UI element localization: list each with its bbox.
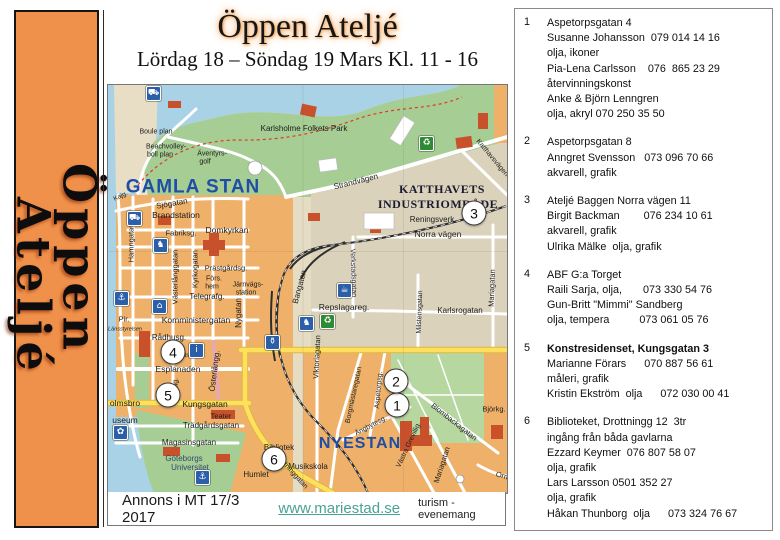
map-marker-4: 4 bbox=[161, 340, 186, 365]
listing-line: Aspetorpsgatan 4 bbox=[547, 16, 768, 31]
listing-line: Pia-Lena Carlsson 076 865 23 29 bbox=[547, 62, 768, 77]
listing-line: akvarell, grafik bbox=[547, 166, 768, 181]
listing-line: Kristin Ekström olja 072 030 00 41 bbox=[547, 387, 768, 402]
map-marker-1: 1 bbox=[385, 393, 410, 418]
map-label-aspetorpsg: Aspetorpsg. bbox=[374, 371, 384, 409]
camper-icon: ⛟ bbox=[146, 86, 161, 101]
map-overlay: GAMLA STANNYESTANKATTHAVETSINDUSTRIOMRÅD… bbox=[108, 85, 507, 493]
listing-entry: 2 Aspetorpsgatan 8 Anngret Svensson 073 … bbox=[524, 135, 768, 181]
divider-line bbox=[103, 10, 104, 527]
map-label-borgmastaregatan: Borgmästaregatan bbox=[345, 366, 364, 424]
map-label-bjorkg: Björkg. bbox=[482, 405, 505, 413]
listing-line: Raili Sarja, olja, 073 330 54 76 bbox=[547, 283, 768, 298]
info-icon: i bbox=[189, 343, 204, 358]
map-label-reningsverk: Reningsverk bbox=[410, 216, 454, 224]
museum-flower-icon: ✿ bbox=[113, 425, 128, 440]
map-label-golf: golf bbox=[199, 159, 210, 166]
map-label-kajg: Kajg. bbox=[113, 191, 129, 203]
map-label-pir: Pir. bbox=[119, 315, 130, 323]
map-marker-2: 2 bbox=[384, 369, 409, 394]
page-title: Öppen Ateljé bbox=[107, 8, 508, 45]
recycle-icon-2: ♻ bbox=[419, 136, 434, 151]
map-marker-6: 6 bbox=[262, 447, 287, 472]
map-label-mariagatan-n: Mariagatan bbox=[488, 269, 497, 307]
map-label-holmsbro: olmsbro bbox=[110, 399, 140, 408]
map-label-bollplan: boll plan bbox=[147, 152, 173, 159]
map-marker-5: 5 bbox=[156, 383, 181, 408]
anchor-icon: ⚓ bbox=[114, 291, 129, 306]
banner-text: Öppen Ateljé bbox=[11, 163, 103, 376]
listing-number: 2 bbox=[524, 135, 547, 181]
listing-line: olja, grafik bbox=[547, 491, 768, 506]
map-label-blombackagatan: Blombackagatan bbox=[430, 402, 479, 442]
listing-line: ingång från båda gavlarna bbox=[547, 431, 768, 446]
church-icon: ⌂ bbox=[152, 299, 167, 314]
listing-entry: 6 Biblioteket, Drottningg 12 3tr ingång … bbox=[524, 415, 768, 521]
map-label-bangatan: Bangatan bbox=[292, 269, 309, 304]
listing-entry: 5 Konstresidenset, Kungsgatan 3 Marianne… bbox=[524, 342, 768, 403]
footer: Annons i MT 17/3 2017 www.mariestad.se t… bbox=[107, 492, 506, 526]
map-label-osterlangg: Österlångg. bbox=[209, 350, 222, 392]
listing-line: Anngret Svensson 073 096 70 66 bbox=[547, 151, 768, 166]
map-label-vasterlanggatan: Västerlånggatan bbox=[171, 250, 179, 305]
map-label-gamla-stan: GAMLA STAN bbox=[126, 178, 261, 197]
map-label-goteborgs: Göteborgs bbox=[165, 455, 202, 463]
listing-line: måleri, grafik bbox=[547, 372, 768, 387]
listing-line: Marianne Förars 070 887 56 61 bbox=[547, 357, 768, 372]
listing-line: ABF G:a Torget bbox=[547, 268, 768, 283]
map-label-aventyrs: Äventyrs- bbox=[197, 151, 227, 158]
map-label-esplanaden: Esplanaden bbox=[156, 365, 201, 374]
footer-tagline: turism - evenemang bbox=[418, 497, 505, 521]
map-label-fabriksg: Fabriksg. bbox=[166, 229, 197, 237]
map-label-jarnvags: Järnvägs- bbox=[233, 282, 264, 289]
moose-icon: ♞ bbox=[153, 238, 168, 253]
map-label-beachvolley: Beachvolley- bbox=[146, 144, 186, 151]
mariestad-link[interactable]: www.mariestad.se bbox=[278, 500, 400, 517]
map-label-komministergatan: Komministergatan bbox=[162, 316, 231, 325]
map-label-karlsrogatan: Karlsrogatan bbox=[437, 307, 482, 315]
listing-line: Gun-Britt "Mimmi" Sandberg bbox=[547, 298, 768, 313]
map-label-boule-plan: Boule plan bbox=[139, 129, 172, 136]
recycle-icon-1: ♻ bbox=[320, 314, 335, 329]
map-label-milstensgatan: Milstensgatan bbox=[416, 290, 425, 333]
listing-line: olja, tempera 073 061 05 76 bbox=[547, 313, 768, 328]
listing-number: 3 bbox=[524, 194, 547, 255]
firestation-icon: ⛟ bbox=[127, 211, 142, 226]
listing-line: återvinningskonst bbox=[547, 77, 768, 92]
bottle-icon: ⚱ bbox=[265, 335, 280, 350]
map-label-prastgardsg: Prästgårdsg. bbox=[205, 264, 248, 272]
listing-entry: 1 Aspetorpsgatan 4 Susanne Johansson 079… bbox=[524, 16, 768, 122]
listing-number: 1 bbox=[524, 16, 547, 122]
listing-line: Aspetorpsgatan 8 bbox=[547, 135, 768, 150]
map-marker-3: 3 bbox=[462, 201, 487, 226]
event-date-subtitle: Lördag 18 – Söndag 19 Mars Kl. 11 - 16 bbox=[107, 47, 508, 72]
map-label-brandstation: Brandstation bbox=[152, 211, 200, 220]
listing-number: 5 bbox=[524, 342, 547, 403]
map-label-fors: Förs. bbox=[206, 276, 222, 283]
map-label-katthavsvagen: Katthavsvägen bbox=[474, 138, 508, 178]
map-label-teater: Teater bbox=[211, 412, 232, 420]
map-label-hem: hem bbox=[205, 284, 219, 291]
cafe-icon: ☕ bbox=[337, 283, 352, 298]
listings-panel: 1 Aspetorpsgatan 4 Susanne Johansson 079… bbox=[514, 8, 773, 531]
listing-entry: 3 Ateljé Baggen Norra vägen 11 Birgit Ba… bbox=[524, 194, 768, 255]
map-label-lansstyrelsen: Länsstyrelsen bbox=[108, 327, 142, 333]
banner-word-1: Öppen bbox=[57, 163, 103, 376]
map-label-viktoriagatan: Viktoriagatan bbox=[312, 335, 322, 379]
listing-line: olja, ikoner bbox=[547, 46, 768, 61]
listing-line: Konstresidenset, Kungsgatan 3 bbox=[547, 342, 768, 357]
listing-entry: 4 ABF G:a Torget Raili Sarja, olja, 073 … bbox=[524, 268, 768, 329]
listing-line: Ulrika Mälke olja, grafik bbox=[547, 240, 768, 255]
map-label-magasinsgatan: Magasinsgatan bbox=[162, 439, 216, 447]
map-label-norra-vagen: Norra vägen bbox=[415, 230, 462, 239]
listing-line: Susanne Johansson 079 014 14 16 bbox=[547, 31, 768, 46]
listing-line: Ateljé Baggen Norra vägen 11 bbox=[547, 194, 768, 209]
harbor-anchor-icon: ⚓ bbox=[195, 470, 210, 485]
header: Öppen Ateljé Lördag 18 – Söndag 19 Mars … bbox=[107, 8, 508, 72]
map-label-station: station bbox=[236, 290, 257, 297]
listing-number: 6 bbox=[524, 415, 547, 521]
listing-line: Birgit Backman 076 234 10 61 bbox=[547, 209, 768, 224]
map-label-katthavets: KATTHAVETS bbox=[399, 183, 485, 195]
flyer-page: Öppen Ateljé Öppen Ateljé Lördag 18 – Sö… bbox=[0, 0, 780, 540]
map-label-hamngatan: Hamngatan bbox=[127, 224, 135, 263]
map-label-tradgardsgatan: Trädgårdsgatan bbox=[183, 422, 239, 430]
listing-line: Håkan Thunborg olja 073 324 76 67 bbox=[547, 507, 768, 522]
map-label-museum: useum bbox=[112, 416, 138, 425]
listing-line: olja, grafik bbox=[547, 461, 768, 476]
footer-annons-text: Annons i MT 17/3 2017 bbox=[122, 492, 260, 526]
listing-line: akvarell, grafik bbox=[547, 224, 768, 239]
map-label-mariagatan-s: Mariagatan bbox=[433, 446, 452, 484]
listing-line: Anke & Björn Lenngren bbox=[547, 92, 768, 107]
map-label-sjogatan: Sjögatan bbox=[156, 197, 189, 210]
listing-line: Lars Larsson 0501 352 27 bbox=[547, 476, 768, 491]
city-map: GAMLA STANNYESTANKATTHAVETSINDUSTRIOMRÅD… bbox=[107, 84, 508, 494]
listing-line: Ezzard Keymer 076 807 58 07 bbox=[547, 446, 768, 461]
map-label-repslagareg: Repslagareg. bbox=[319, 303, 370, 312]
listing-line: Biblioteket, Drottningg 12 3tr bbox=[547, 415, 768, 430]
map-label-humlet: Humlet bbox=[243, 471, 268, 479]
map-label-nygatan: Nygatan bbox=[235, 298, 243, 328]
map-label-kyrkogatan: Kyrkogatan bbox=[191, 250, 199, 288]
map-label-angbytesg: Ängbytesg. bbox=[354, 415, 388, 438]
vertical-banner: Öppen Ateljé bbox=[14, 10, 99, 528]
map-label-musikskola: Musikskola bbox=[288, 463, 328, 471]
moose2-icon: ♞ bbox=[299, 316, 314, 331]
map-label-nyestan: NYESTAN bbox=[319, 436, 401, 452]
map-label-orm: Orm bbox=[495, 470, 508, 481]
map-label-karlsholme: Karlsholme Folkets Park bbox=[261, 125, 348, 133]
map-label-strandvagen: Strandvägen bbox=[333, 173, 379, 192]
map-label-telegrafg: Telegrafg. bbox=[189, 293, 224, 301]
map-label-domkyrkan: Domkyrkan bbox=[206, 226, 249, 235]
map-label-kungsgatan: Kungsgatan bbox=[182, 400, 227, 409]
listing-number: 4 bbox=[524, 268, 547, 329]
banner-word-2: Ateljé bbox=[11, 197, 57, 376]
listing-line: olja, akryl 070 250 35 50 bbox=[547, 107, 768, 122]
